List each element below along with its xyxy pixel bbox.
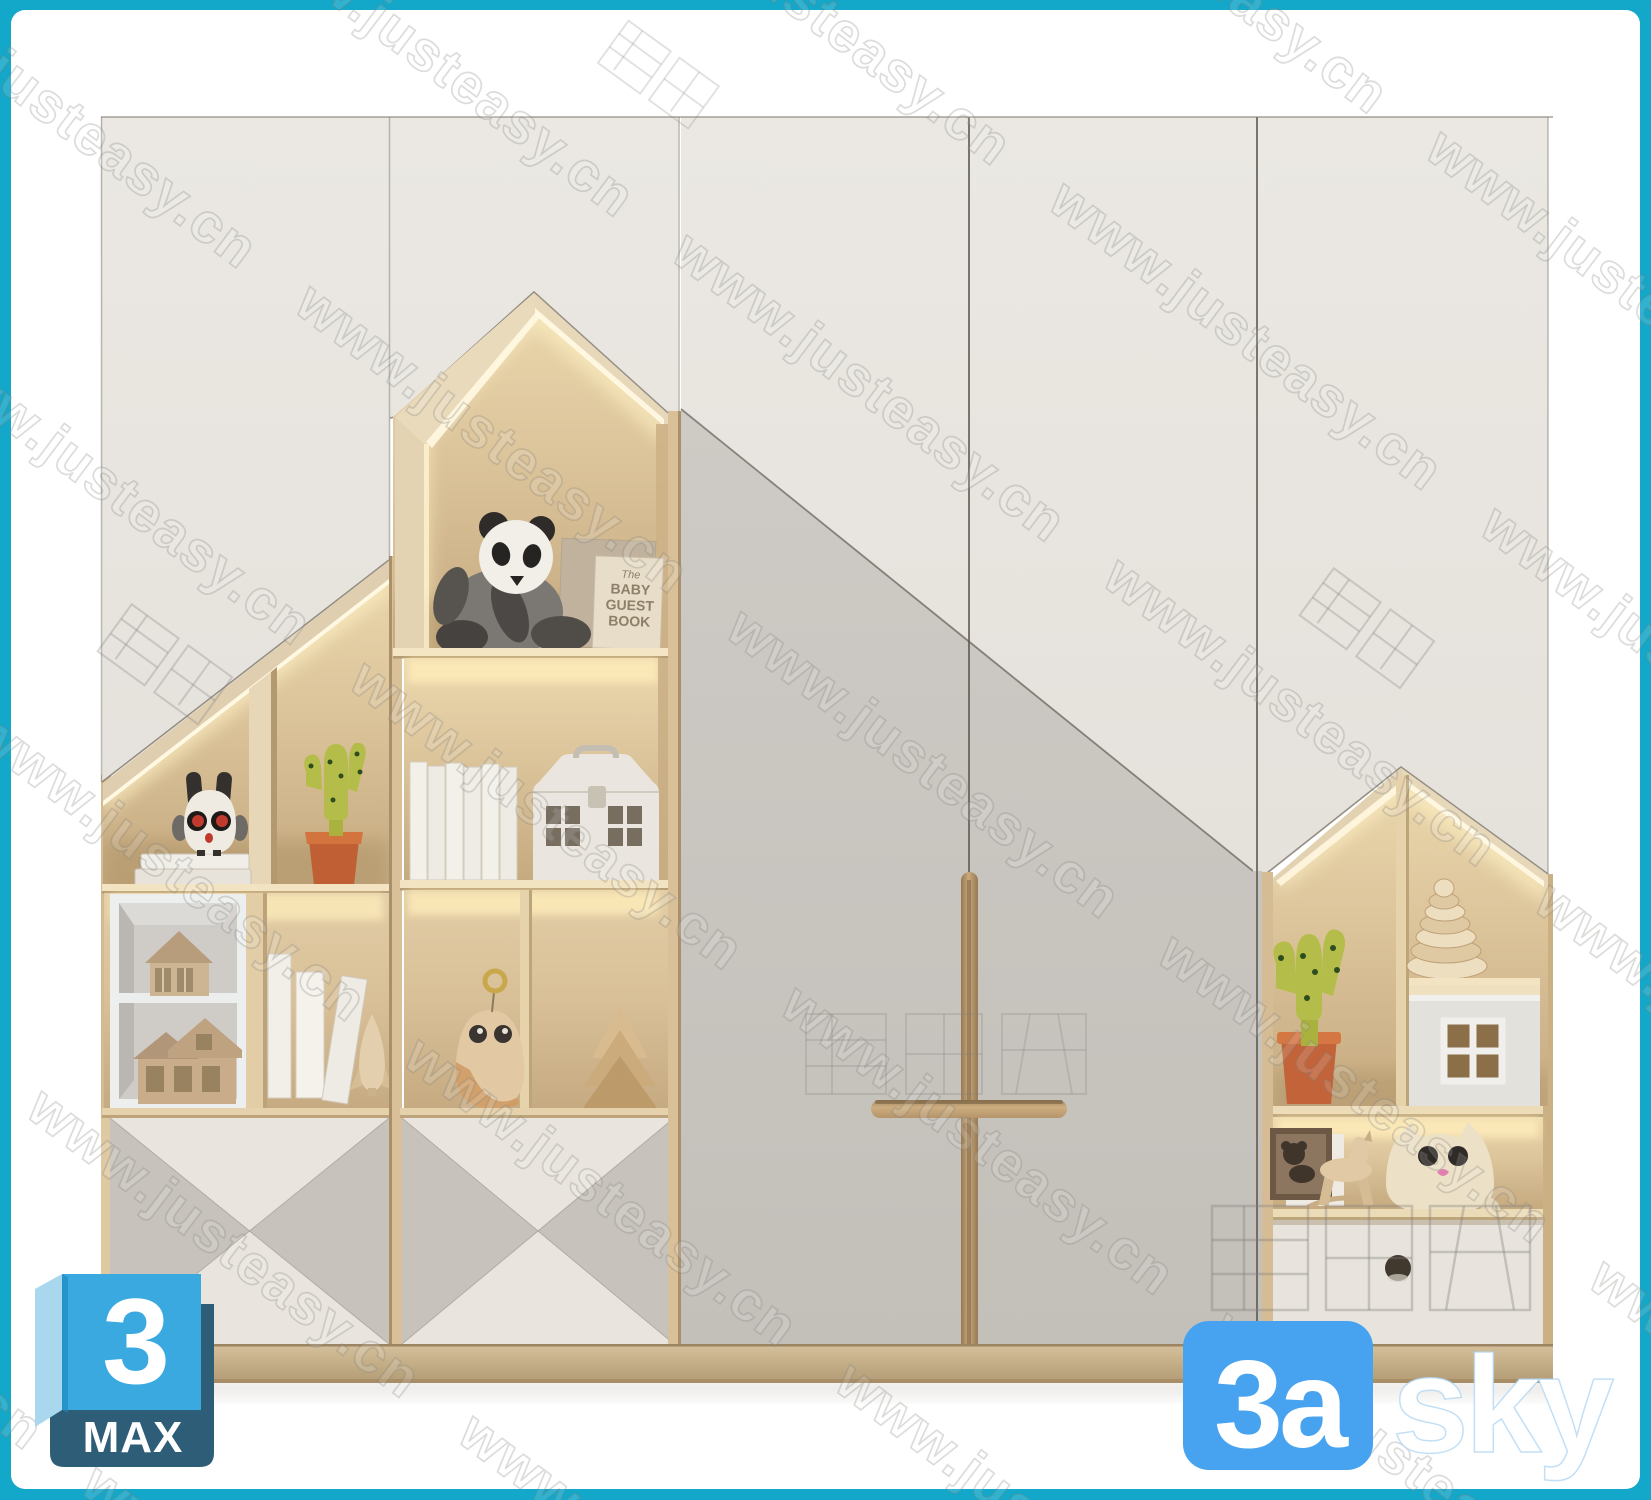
svg-text:3: 3 — [102, 1273, 170, 1409]
svg-text:MAX: MAX — [83, 1413, 184, 1462]
svg-text:sky: sky — [1392, 1328, 1614, 1482]
svg-text:BOOK: BOOK — [608, 612, 651, 629]
svg-text:GUEST: GUEST — [605, 596, 654, 614]
svg-text:3a: 3a — [1214, 1336, 1349, 1474]
